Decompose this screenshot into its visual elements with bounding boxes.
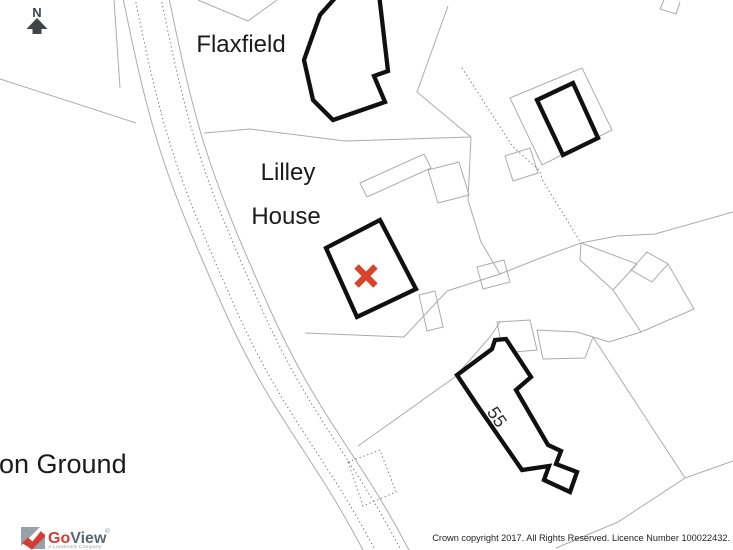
boundary-line (685, 461, 733, 478)
building-55 (457, 339, 577, 492)
outbuilding-outline (505, 148, 538, 181)
boundary-line (660, 0, 680, 14)
outbuilding-outline (477, 260, 510, 289)
boundary-line (198, 0, 277, 21)
goview-logo: GoView ® A Landmark Company (21, 527, 110, 550)
label-flaxfield: Flaxfield (196, 31, 285, 58)
map-plan-view: Flaxfield Lilley House on Ground 55 N Go… (0, 0, 733, 550)
label-house: House (251, 203, 320, 230)
map-canvas: Flaxfield Lilley House on Ground 55 N Go… (0, 0, 733, 550)
outbuilding-outline (428, 162, 469, 203)
north-arrow: N (27, 5, 48, 34)
logo-tagline: A Landmark Company (48, 544, 102, 550)
boundary-line (613, 290, 641, 332)
outbuilding-outline (419, 291, 443, 331)
label-ground: on Ground (0, 449, 127, 479)
copyright-notice: Crown copyright 2017. All Rights Reserve… (432, 533, 730, 543)
boundary-line (0, 79, 136, 123)
dotted-driveway-outline (348, 450, 396, 506)
boundary-line (556, 337, 685, 548)
outbuilding-outline (360, 154, 431, 197)
north-letter: N (32, 5, 41, 20)
boundary-line (447, 212, 733, 291)
boundary-line (114, 0, 120, 88)
buildings (304, 0, 598, 492)
boundary-line (468, 137, 500, 274)
outbuilding-outline (537, 330, 593, 359)
boundary-line (204, 129, 470, 141)
boundary-line (580, 243, 613, 290)
building-flaxfield (304, 0, 388, 120)
boundary-line (417, 6, 471, 137)
outbuilding-outline (631, 252, 668, 282)
north-arrow-icon (27, 18, 48, 34)
building-northeast (537, 83, 598, 155)
boundary-line (581, 243, 637, 264)
registered-mark: ® (105, 527, 110, 535)
label-lilley: Lilley (261, 159, 316, 186)
map-labels: Flaxfield Lilley House on Ground 55 (0, 31, 511, 479)
